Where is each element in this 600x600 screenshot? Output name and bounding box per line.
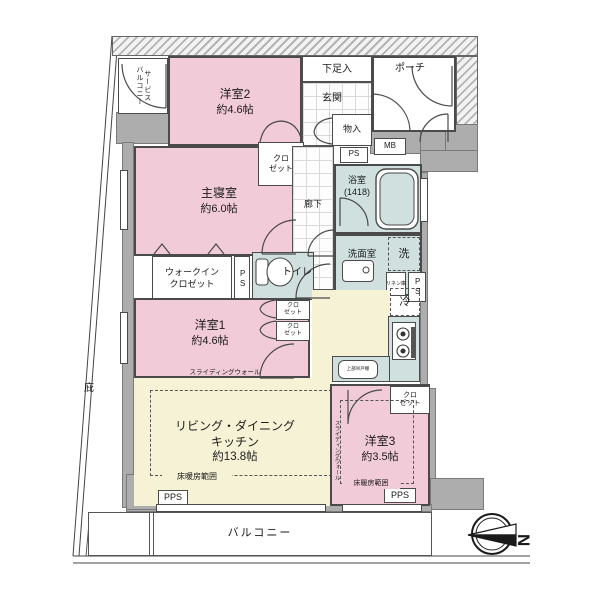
closet-butterfly xyxy=(260,321,276,339)
washbasin-faucet xyxy=(363,267,369,273)
door-swing-arcs xyxy=(122,64,452,424)
door-arc xyxy=(348,390,382,424)
door-arc xyxy=(296,264,330,298)
closet-butterfly xyxy=(260,121,302,142)
door-arc xyxy=(308,230,334,256)
toilet-fixture xyxy=(256,258,293,286)
door-arc xyxy=(420,114,448,142)
door-arc xyxy=(262,220,296,254)
compass-n-label: N xyxy=(514,534,533,546)
door-arc xyxy=(372,94,410,132)
folding-door-marks xyxy=(154,244,224,254)
bath-tub xyxy=(376,169,418,229)
door-arc xyxy=(122,64,166,108)
doors-and-fixtures-layer: N xyxy=(0,0,600,600)
closet-butterfly xyxy=(260,300,276,318)
door-arc xyxy=(340,198,368,226)
floor-plan: N サービス バルコニー 洋室2 約4.6帖 下足入 玄関 ポーチ 物入 MB … xyxy=(0,0,600,600)
compass-icon: N xyxy=(468,514,533,554)
door-arc xyxy=(260,344,294,378)
door-arc xyxy=(412,66,452,106)
closet-butterfly xyxy=(314,118,332,144)
stove-burners xyxy=(397,327,416,358)
